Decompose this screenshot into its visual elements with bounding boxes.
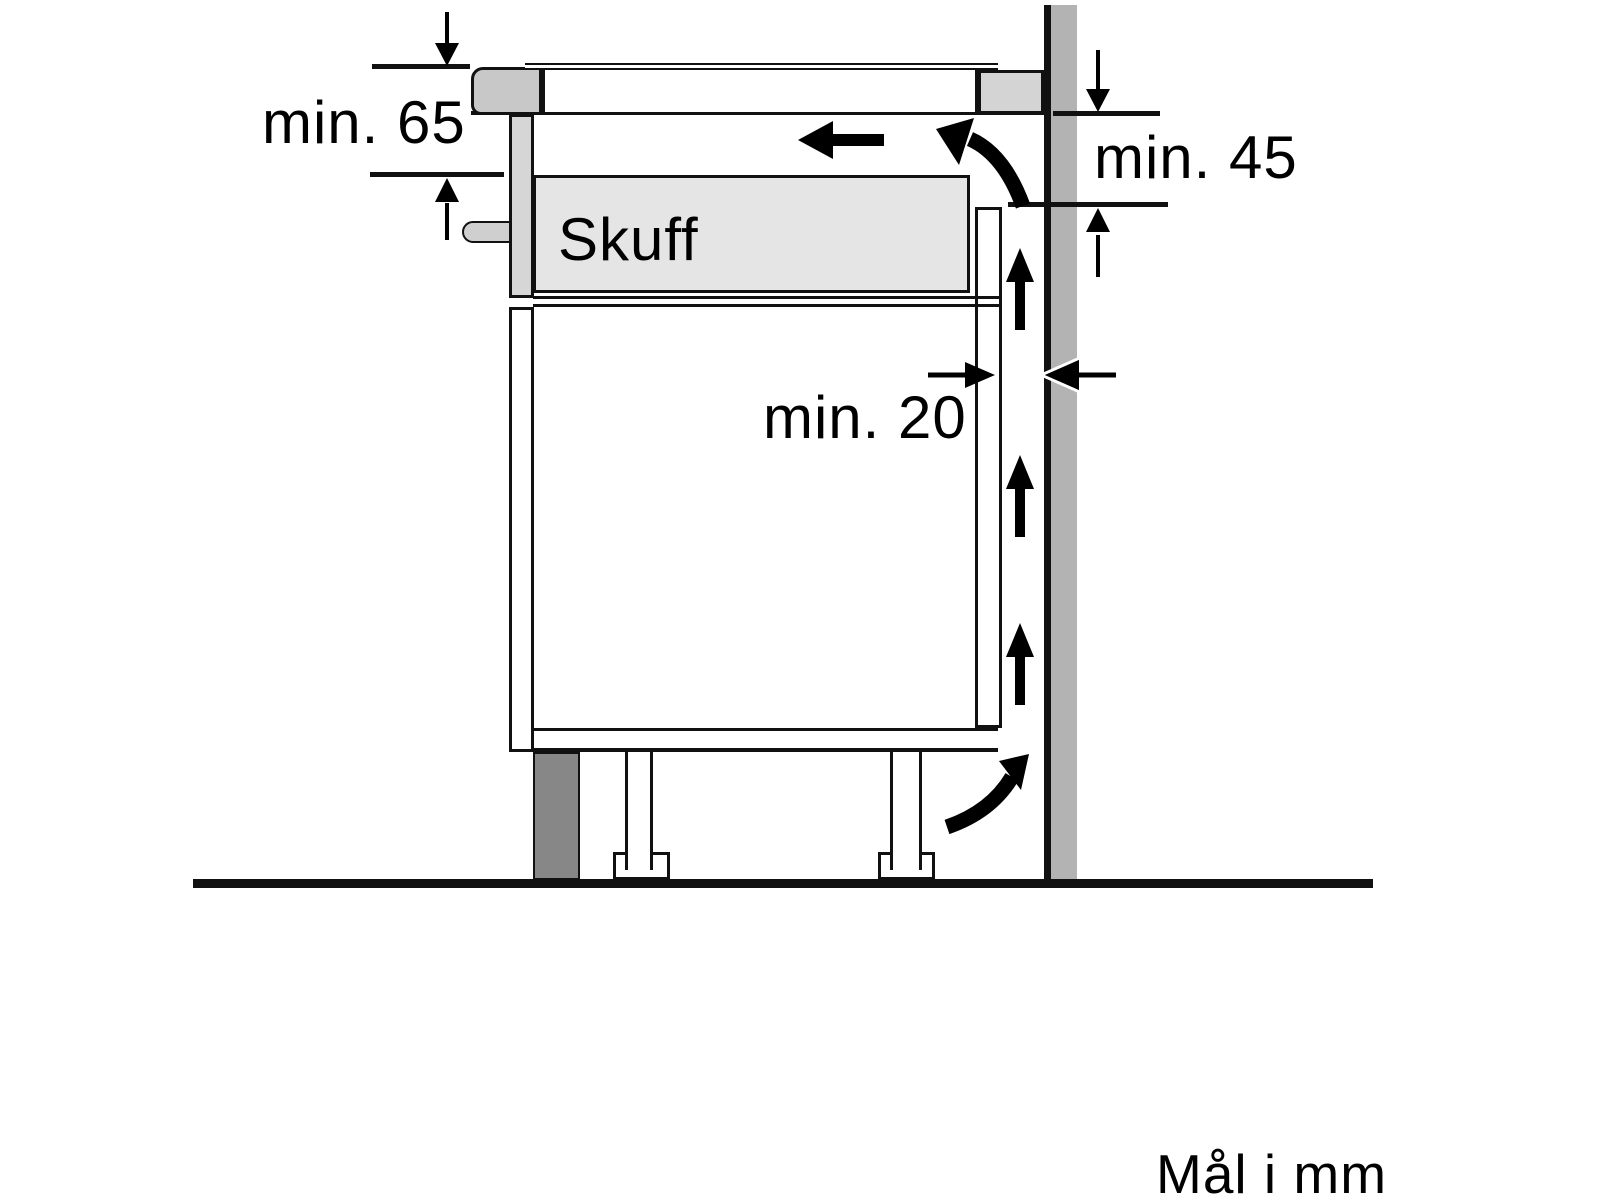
dim-line-min45-top [1053, 111, 1160, 116]
dimension-label-min45: min. 45 [1094, 128, 1298, 188]
dim-line-min65-top [372, 64, 470, 69]
rear-leg-stem [890, 752, 922, 870]
units-note: Mål i mm [1156, 1147, 1387, 1200]
dim-line-min65-bottom [370, 172, 504, 177]
airflow-up-arrow-3 [1006, 623, 1034, 705]
floor-line [193, 879, 1373, 888]
down-dimension-arrow-min65 [435, 12, 459, 66]
up-dimension-arrow-min65 [435, 178, 459, 240]
drawer-front-panel [509, 114, 534, 298]
cabinet-door-front [509, 307, 534, 752]
cabinet-back-panel [975, 207, 1002, 728]
airflow-left-arrow [798, 121, 884, 159]
plinth [533, 752, 580, 880]
dimension-label-min65: min. 65 [262, 93, 466, 153]
airflow-curved-arrow-bottom [947, 754, 1029, 827]
installation-diagram: Skuff [0, 0, 1600, 1200]
dim-line-min45-bottom [1008, 202, 1168, 207]
dimension-label-min20: min. 20 [763, 388, 967, 448]
hob-body [542, 67, 978, 115]
down-dimension-arrow-min45 [1086, 50, 1110, 112]
airflow-up-arrow-2 [1006, 455, 1034, 537]
worktop-rear-section [978, 70, 1044, 114]
drawer-label: Skuff [558, 210, 699, 270]
front-leg-stem [625, 752, 653, 870]
airflow-up-arrow-1 [1006, 248, 1034, 330]
worktop-front-edge [471, 67, 542, 115]
hob-glass [525, 63, 998, 70]
wall [1051, 5, 1077, 879]
wall-edge-line [1044, 5, 1051, 879]
drawer-box: Skuff [533, 175, 970, 293]
mounting-bracket [462, 221, 512, 243]
under-drawer-rail [533, 296, 1002, 307]
cabinet-bottom-panel [533, 728, 998, 752]
up-dimension-arrow-min45 [1086, 208, 1110, 277]
